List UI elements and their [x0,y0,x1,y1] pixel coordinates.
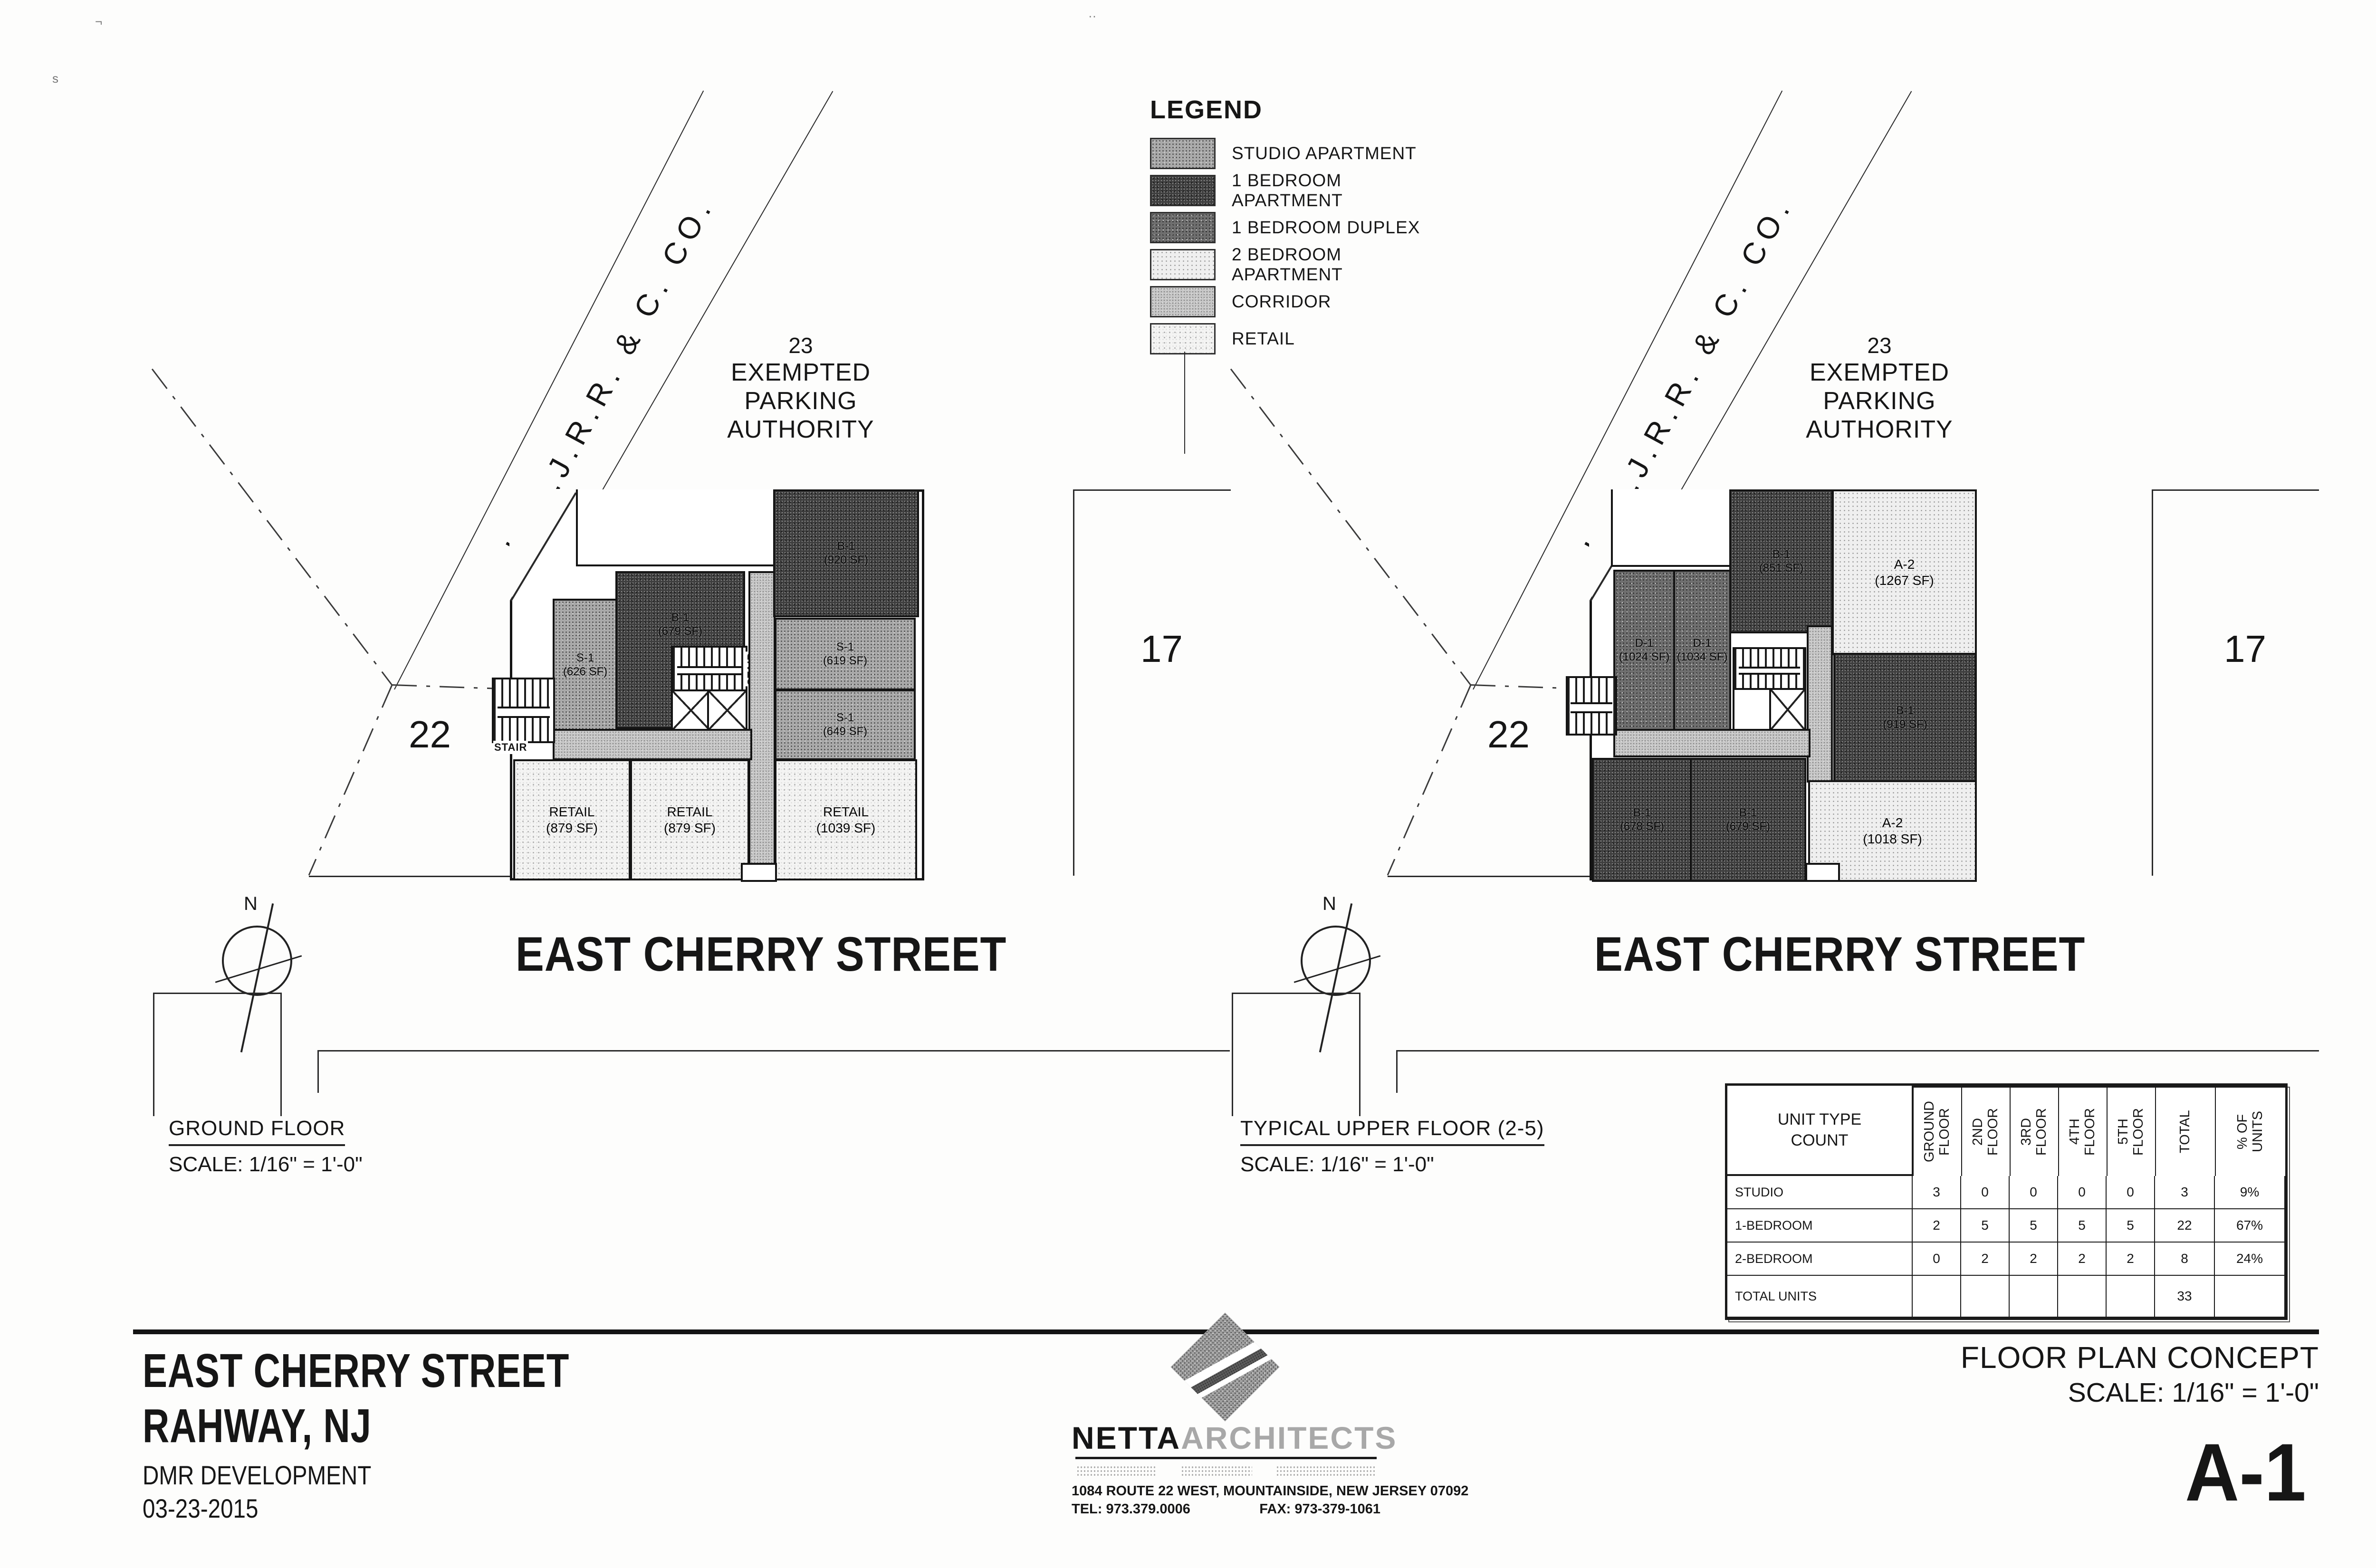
unit-code: S-1 [836,641,854,654]
project-city: RAHWAY, NJ [143,1399,372,1453]
sheet-number: A-1 [2185,1425,2306,1520]
cell [2107,1276,2155,1318]
north-letter: N [1322,893,1336,915]
north-arrow: N [216,893,302,1055]
legend: LEGEND STUDIO APARTMENT 1 BEDROOM APARTM… [1150,95,1454,357]
corridor [1807,625,1833,783]
caption-scale: SCALE: 1/16" = 1'-0" [1240,1153,1544,1176]
parcel-line [2152,489,2319,491]
legend-label: 2 BEDROOM APARTMENT [1232,245,1454,285]
studio-swatch [1150,138,1216,169]
architect-name-secondary: ARCHITECTS [1181,1420,1397,1455]
cell: 0 [1913,1243,1961,1276]
unit-code: B-1 [671,611,689,625]
cell-total-units: 33 [2155,1276,2215,1318]
retail-swatch [1150,323,1216,354]
site-line [1232,993,1360,994]
col-header-pct-units: % OF UNITS [2215,1086,2285,1176]
unit-duplex: D-1 (1034 SF) [1673,570,1731,731]
entry-vestibule [741,863,777,882]
parcel-number-23: 23 [687,333,915,358]
stair-label: STAIR [493,741,528,754]
table-title-line1: UNIT TYPE [1778,1109,1861,1130]
architect-block: NETTAARCHITECTS 1084 ROUTE 22 WEST, MOUN… [1072,1325,1380,1520]
elevator-shaft [1769,688,1806,731]
site-line [1359,993,1360,1116]
col-header-total: TOTAL [2155,1086,2215,1176]
unit-studio: S-1 (626 SF) [553,599,618,732]
unit-area: (1039 SF) [816,820,876,836]
parking-authority-label: 23 EXEMPTED PARKING AUTHORITY [1765,333,1993,444]
property-line [1387,685,1472,876]
drawing-sheet: ¬ ·· ∿ s LEGEND STUDIO APARTMENT 1 BEDRO… [0,0,2376,1568]
building-notch [1611,489,1731,567]
parcel-number-22: 22 [409,713,451,756]
legend-item-corridor: CORRIDOR [1150,283,1454,320]
street-line-tick [317,1050,319,1093]
unit-code: D-1 [1635,637,1654,650]
drawing-date: 03-23-2015 [143,1493,258,1524]
unit-area: (679 SF) [658,625,702,639]
architect-name-primary: NETTA [1072,1420,1181,1455]
unit-studio: S-1 (649 SF) [775,689,916,760]
unit-code: RETAIL [823,804,869,820]
cell [1913,1276,1961,1318]
unit-1-bedroom: B-1 (679 SF) [1690,758,1806,882]
unit-code: A-2 [1882,815,1903,831]
unit-code: D-1 [1693,637,1712,650]
netta-logo-icon [1170,1312,1279,1421]
parking-line1: EXEMPTED [687,358,915,387]
row-label-total-units: TOTAL UNITS [1727,1276,1913,1318]
plan-caption-ground: GROUND FLOOR SCALE: 1/16" = 1'-0" [169,1117,363,1176]
cell: 0 [1961,1176,2010,1209]
unit-1-bedroom: B-1 (678 SF) [1592,758,1692,882]
stair-landing [498,707,550,718]
corridor-swatch [1150,286,1216,317]
parcel-number-17: 17 [2224,627,2266,671]
stair-core: STAIR [671,646,747,692]
cell: 5 [2058,1209,2107,1243]
ground-floor-building: S-1 (626 SF) B-1 (679 SF) STAIR B-1 (920… [510,489,924,880]
faded-text-segment [1076,1465,1157,1476]
legend-item-retail: RETAIL [1150,320,1454,357]
caption-title: GROUND FLOOR [169,1117,345,1146]
architect-name: NETTAARCHITECTS [1072,1420,1380,1456]
corridor [748,571,776,882]
unit-1-bedroom: B-1 (919 SF) [1833,653,1977,783]
street-line [1396,1050,2319,1052]
legend-leader-line [1184,352,1185,454]
unit-area: (649 SF) [823,725,867,739]
unit-area: (920 SF) [824,554,868,567]
unit-area: (879 SF) [546,820,598,836]
parcel-line [1073,489,1074,876]
cell [2215,1276,2285,1318]
building-notch [576,489,777,566]
parcel-number-22: 22 [1487,713,1530,756]
two-bedroom-swatch [1150,249,1216,280]
stair-west [1566,676,1617,736]
parking-line2: PARKING AUTHORITY [1765,387,1993,444]
cell: 0 [2058,1176,2107,1209]
property-line [1230,369,1471,686]
architect-address: 1084 ROUTE 22 WEST, MOUNTAINSIDE, NEW JE… [1072,1483,1380,1499]
parcel-number-17: 17 [1140,627,1183,671]
cell: 24% [2215,1243,2285,1276]
unit-area: (678 SF) [1620,820,1664,834]
drawing-scale: SCALE: 1/16" = 1'-0" [1901,1377,2319,1408]
architect-tel: TEL: 973.379.0006 [1072,1501,1190,1517]
parcel-line [1073,489,1231,491]
utility-room [1733,688,1773,731]
parcel-line [2152,489,2153,876]
unit-1-bedroom: B-1 (920 SF) [773,489,919,617]
cell [2010,1276,2058,1318]
cell: 8 [2155,1243,2215,1276]
project-title: EAST CHERRY STREET [143,1344,569,1398]
legend-label: 1 BEDROOM DUPLEX [1232,218,1420,238]
elevator-shaft [671,689,711,731]
property-line [308,685,393,876]
unit-code: B-1 [1739,806,1757,820]
col-header-ground-floor: GROUND FLOOR [1913,1086,1961,1176]
unit-code: RETAIL [667,804,713,820]
caption-scale: SCALE: 1/16" = 1'-0" [169,1153,363,1176]
table-title-line2: COUNT [1791,1130,1849,1151]
legend-label: CORRIDOR [1232,292,1331,312]
scan-artifact: ¬ [95,14,102,29]
street-name: EAST CHERRY STREET [516,927,934,982]
unit-code: A-2 [1894,556,1915,573]
corridor [1613,729,1811,757]
faded-fine-print [1076,1465,1376,1477]
unit-area: (1034 SF) [1677,650,1728,664]
legend-item-2br: 2 BEDROOM APARTMENT [1150,246,1454,283]
unit-2-bedroom: A-2 (1267 SF) [1832,489,1977,655]
unit-area: (879 SF) [664,820,716,836]
cell: 22 [2155,1209,2215,1243]
unit-area: (679 SF) [1726,820,1770,834]
unit-area: (626 SF) [563,665,607,679]
legend-item-duplex: 1 BEDROOM DUPLEX [1150,209,1454,246]
unit-code: B-1 [1633,806,1651,820]
cell: 2 [2010,1243,2058,1276]
unit-retail: RETAIL (879 SF) [513,759,631,880]
north-letter: N [244,893,258,915]
row-label-1-bedroom: 1-BEDROOM [1727,1209,1913,1243]
unit-area: (1018 SF) [1863,831,1922,847]
col-header-3rd-floor: 3RD FLOOR [2010,1086,2058,1176]
cell: 2 [2107,1243,2155,1276]
cell [2058,1276,2107,1318]
col-header-5th-floor: 5TH FLOOR [2107,1086,2155,1176]
upper-floor-building: D-1 (1024 SF) D-1 (1034 SF) B-1 (851 SF)… [1590,489,1976,880]
unit-count-table: UNIT TYPE COUNT GROUND FLOOR 2ND FLOOR 3… [1725,1083,2288,1320]
unit-1-bedroom: B-1 (851 SF) [1729,489,1833,633]
stair-landing [1571,702,1612,713]
cell: 5 [1961,1209,2010,1243]
stair-landing [677,666,741,675]
unit-retail: RETAIL (879 SF) [630,759,749,880]
unit-area: (619 SF) [823,654,867,668]
cell: 5 [2010,1209,2058,1243]
site-line [1388,876,1590,877]
architect-fax: FAX: 973-379-1061 [1259,1501,1380,1517]
scan-artifact: ·· [1088,9,1096,23]
site-line [153,993,154,1116]
parking-authority-label: 23 EXEMPTED PARKING AUTHORITY [687,333,915,444]
unit-area: (919 SF) [1883,718,1927,732]
site-line [153,993,281,994]
stair-west [492,678,555,743]
parcel-number-23: 23 [1765,333,1993,358]
cell [1961,1276,2010,1318]
street-name: EAST CHERRY STREET [1594,927,2012,982]
site-line [309,876,511,877]
unit-code: B-1 [1896,704,1914,718]
row-label-2-bedroom: 2-BEDROOM [1727,1243,1913,1276]
unit-code: B-1 [1772,548,1790,562]
scan-artifact: s [52,71,58,86]
cell: 2 [1913,1209,1961,1243]
legend-label: RETAIL [1232,329,1295,349]
cell: 0 [2010,1176,2058,1209]
unit-studio: S-1 (619 SF) [775,618,916,690]
unit-area: (851 SF) [1759,562,1803,575]
legend-item-studio: STUDIO APARTMENT [1150,135,1454,172]
site-line [280,993,282,1116]
stair-core [1733,647,1806,690]
col-header-2nd-floor: 2ND FLOOR [1961,1086,2010,1176]
caption-title: TYPICAL UPPER FLOOR (2-5) [1240,1117,1544,1146]
cell: 67% [2215,1209,2285,1243]
parking-line2: PARKING AUTHORITY [687,387,915,444]
parking-line1: EXEMPTED [1765,358,1993,387]
legend-label: STUDIO APARTMENT [1232,143,1417,163]
unit-code: RETAIL [549,804,595,820]
col-header-4th-floor: 4TH FLOOR [2058,1086,2107,1176]
client-name: DMR DEVELOPMENT [143,1460,371,1491]
cell: 9% [2215,1176,2285,1209]
row-label-studio: STUDIO [1727,1176,1913,1209]
legend-label: 1 BEDROOM APARTMENT [1232,171,1454,210]
property-line [152,369,393,686]
cell: 2 [2058,1243,2107,1276]
cell: 0 [2107,1176,2155,1209]
logo-bar [1177,1339,1279,1404]
legend-title: LEGEND [1150,95,1454,124]
faded-text-segment [1276,1465,1376,1476]
corridor [553,729,752,760]
street-line [317,1050,1230,1052]
street-line-tick [1396,1050,1398,1093]
cell: 2 [1961,1243,2010,1276]
unit-code: S-1 [576,651,594,665]
elevator-shaft [707,689,747,731]
cell: 3 [2155,1176,2215,1209]
unit-code: S-1 [836,711,854,725]
table-title-cell: UNIT TYPE COUNT [1727,1086,1913,1176]
legend-item-1br: 1 BEDROOM APARTMENT [1150,172,1454,209]
unit-duplex: D-1 (1024 SF) [1613,570,1675,731]
unit-code: B-1 [837,540,855,554]
unit-area: (1024 SF) [1619,650,1670,664]
architect-rule [1075,1457,1377,1459]
one-bedroom-swatch [1150,175,1216,206]
stair-landing [1739,667,1800,675]
site-line [1232,993,1233,1116]
plan-caption-upper: TYPICAL UPPER FLOOR (2-5) SCALE: 1/16" =… [1240,1117,1544,1176]
faded-text-segment [1181,1465,1252,1476]
architect-phone-row: TEL: 973.379.0006 FAX: 973-379-1061 [1072,1501,1380,1517]
duplex-swatch [1150,212,1216,243]
unit-area: (1267 SF) [1875,573,1934,589]
cell: 3 [1913,1176,1961,1209]
drawing-title: FLOOR PLAN CONCEPT [1901,1340,2319,1375]
entry-vestibule [1805,863,1840,882]
cell: 5 [2107,1209,2155,1243]
north-arrow: N [1295,893,1380,1055]
unit-retail: RETAIL (1039 SF) [775,759,917,880]
